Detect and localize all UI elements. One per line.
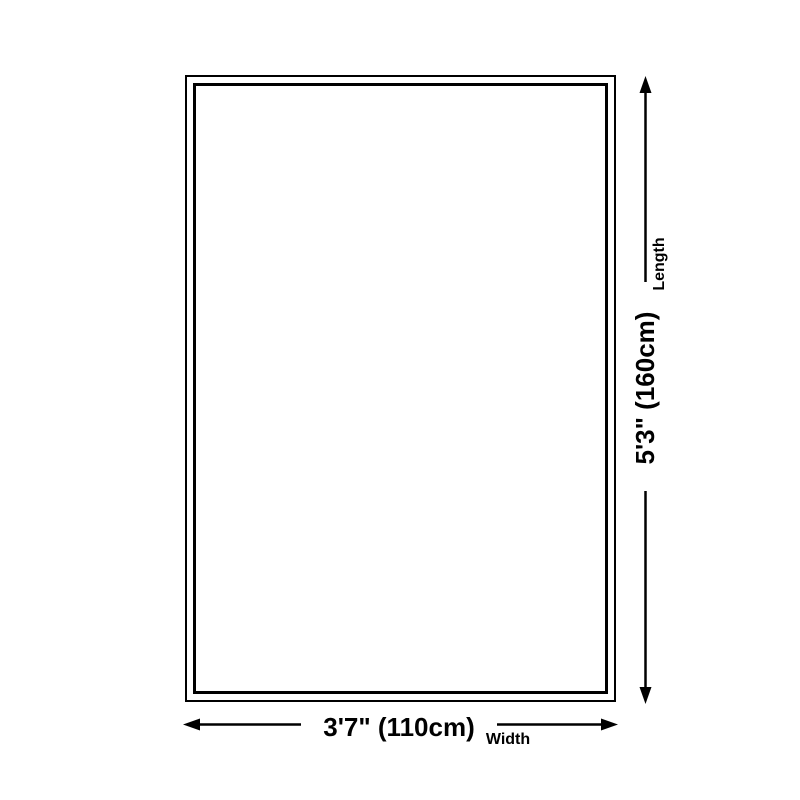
product-outline-outer xyxy=(185,75,616,702)
length-label: Length xyxy=(652,237,668,290)
arrow-down-icon xyxy=(640,687,652,704)
width-value: 3'7" (110cm) xyxy=(323,714,475,740)
arrow-left-icon xyxy=(183,719,200,731)
width-label: Width xyxy=(486,732,530,748)
arrow-right-icon xyxy=(601,719,618,731)
product-dimension-diagram: 5'3" (160cm) Length 3'7" (110cm) Width xyxy=(0,0,800,800)
product-outline-inner xyxy=(193,83,608,694)
arrow-up-icon xyxy=(640,76,652,93)
length-value: 5'3" (160cm) xyxy=(632,312,658,465)
